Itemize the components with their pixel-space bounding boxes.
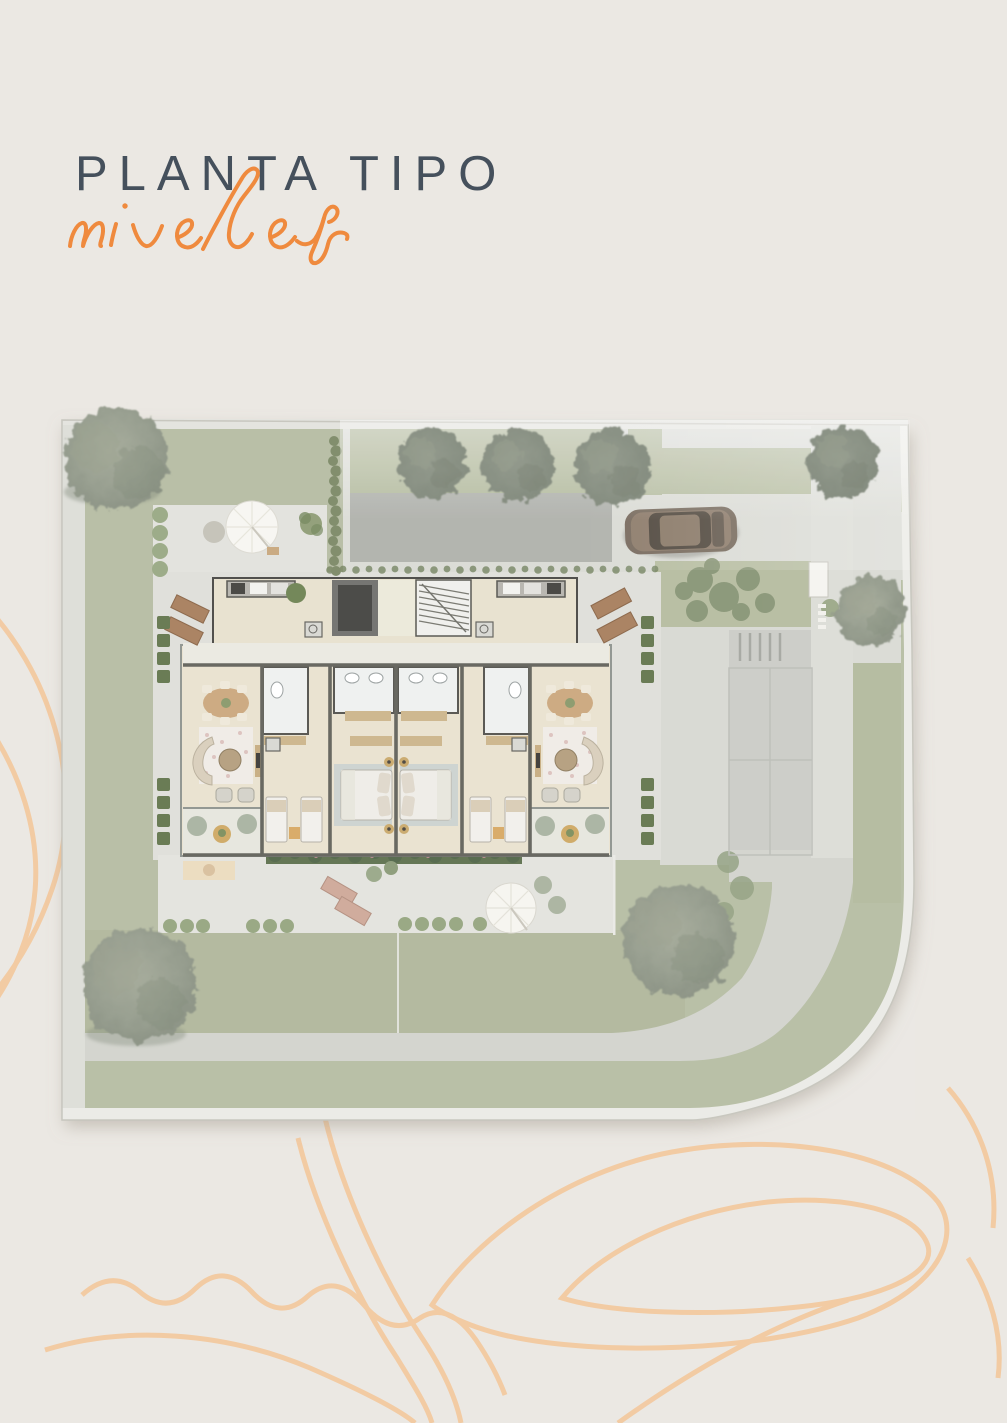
svg-text:PLANTA TIPO: PLANTA TIPO [75,147,507,201]
